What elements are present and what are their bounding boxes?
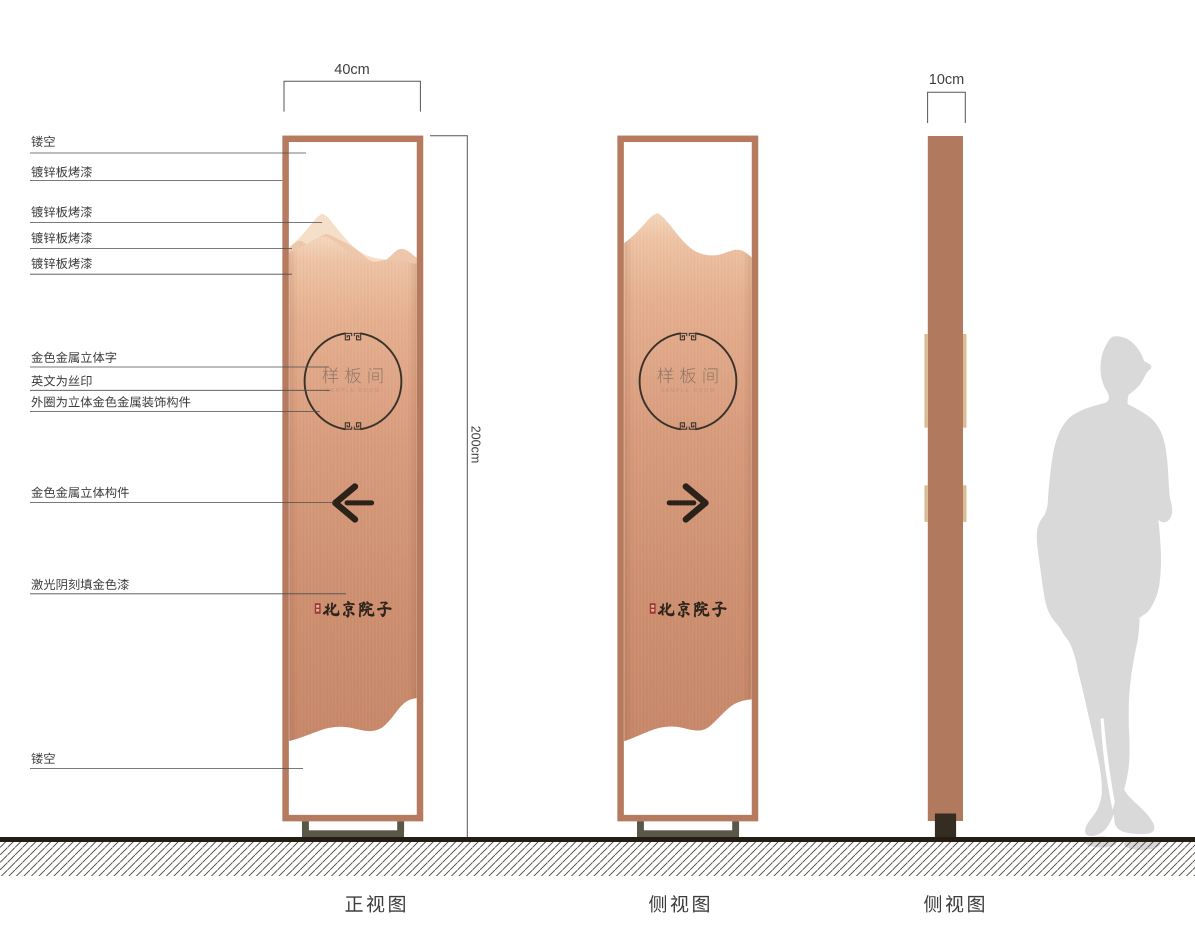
svg-text:SAMPLE ROOM: SAMPLE ROOM [661,388,716,394]
svg-text:10cm: 10cm [929,72,964,88]
svg-text:40cm: 40cm [334,62,369,78]
svg-text:SAMPLE ROOM: SAMPLE ROOM [326,388,381,394]
svg-text:200cm: 200cm [469,426,483,464]
